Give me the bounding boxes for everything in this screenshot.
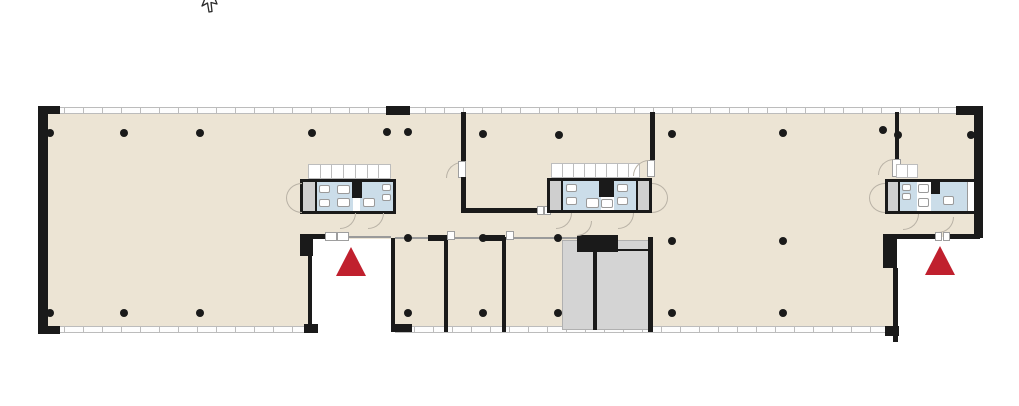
- entrance-triangle-marker: [925, 246, 955, 275]
- mouse-cursor-icon: [199, 0, 223, 18]
- floor-plan: [0, 0, 1019, 406]
- entrance-markers-layer: [0, 0, 1019, 406]
- entrance-triangle-marker: [336, 247, 366, 276]
